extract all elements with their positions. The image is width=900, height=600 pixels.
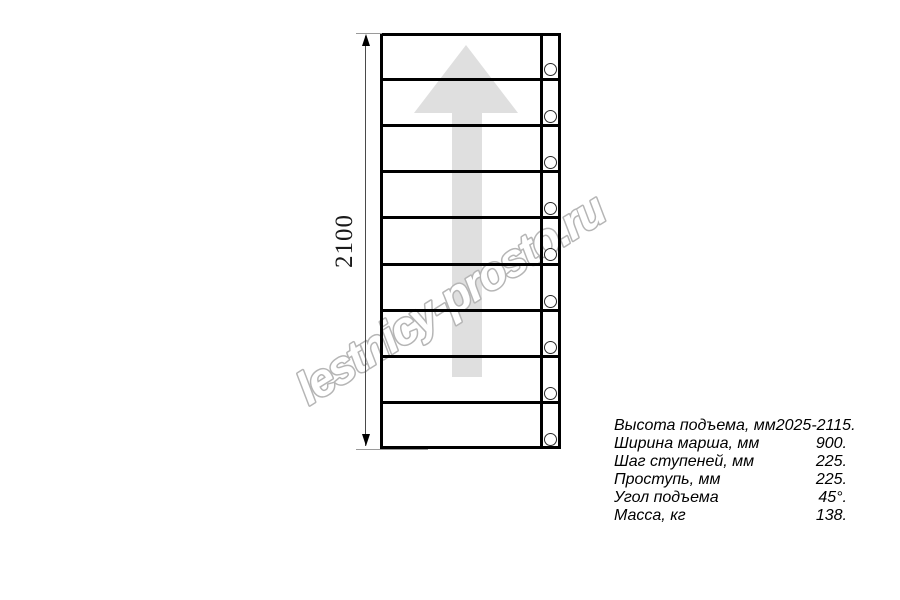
- spec-row: Ширина марша, мм 900.: [614, 435, 847, 453]
- spec-value: 225.: [816, 471, 847, 489]
- spec-label: Высота подъема, мм: [614, 417, 776, 435]
- spec-row: Высота подъема, мм 2025-2115.: [614, 417, 847, 435]
- spec-value: 138.: [816, 507, 847, 525]
- spec-row: Масса, кг 138.: [614, 507, 847, 525]
- stair-drawing-page: lestnicy-prosto.ru 2100 Высота подъема, …: [0, 0, 900, 600]
- spec-value: 900.: [816, 435, 847, 453]
- spec-row: Шаг ступеней, мм 225.: [614, 453, 847, 471]
- spec-table: Высота подъема, мм 2025-2115. Ширина мар…: [614, 417, 847, 525]
- spec-value: 2025-2115.: [776, 417, 856, 435]
- spec-label: Шаг ступеней, мм: [614, 453, 754, 471]
- spec-label: Проступь, мм: [614, 471, 720, 489]
- spec-value: 225.: [816, 453, 847, 471]
- spec-value: 45°.: [818, 489, 847, 507]
- spec-row: Угол подъема 45°.: [614, 489, 847, 507]
- spec-label: Масса, кг: [614, 507, 686, 525]
- spec-row: Проступь, мм 225.: [614, 471, 847, 489]
- spec-label: Ширина марша, мм: [614, 435, 759, 453]
- spec-label: Угол подъема: [614, 489, 719, 507]
